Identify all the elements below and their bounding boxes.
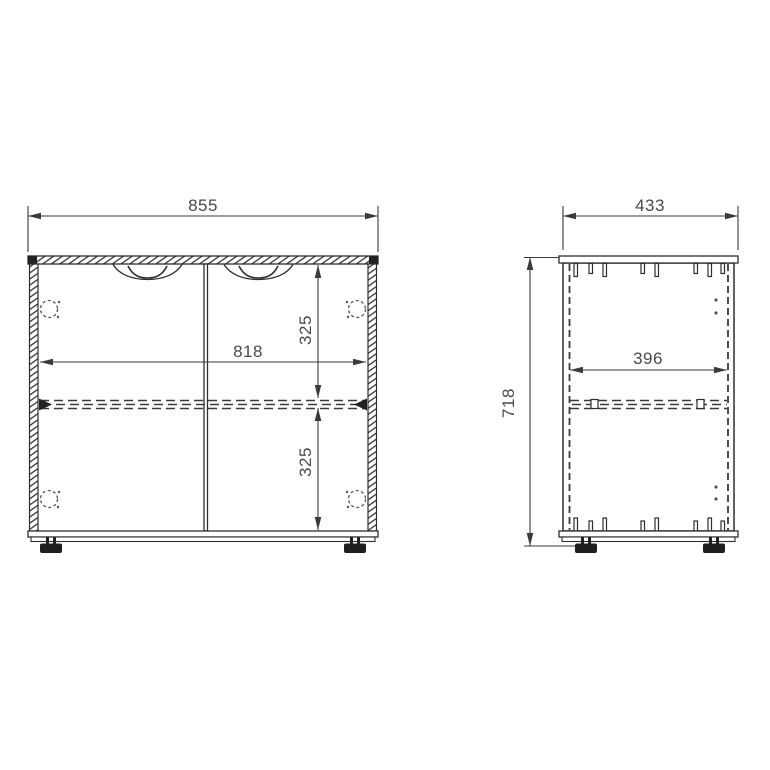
front-shelf-hidden-line xyxy=(40,401,366,409)
side-bottom-panel xyxy=(559,531,738,537)
front-top-left-corner-block xyxy=(28,256,37,264)
front-inner-width-dimension xyxy=(40,359,366,366)
front-lower-compartment-label: 325 xyxy=(297,445,315,479)
cabinet-dimension-drawing xyxy=(0,0,770,770)
upper-compartment-dimension xyxy=(315,265,322,398)
front-bottom-panel xyxy=(28,531,378,537)
front-view xyxy=(28,206,378,553)
front-left-side-panel xyxy=(30,264,39,531)
front-center-divider xyxy=(204,264,208,531)
left-door-handle-recess xyxy=(113,265,182,280)
hinge-marker-top-left xyxy=(41,301,58,318)
front-top-panel xyxy=(28,256,378,264)
front-width-label: 855 xyxy=(186,197,220,215)
front-base-strip xyxy=(31,537,375,542)
front-top-right-corner-block xyxy=(369,256,378,264)
side-height-label: 718 xyxy=(500,386,518,420)
front-upper-compartment-label: 325 xyxy=(297,313,315,347)
hinge-marker-bottom-left xyxy=(41,491,58,508)
right-door-handle-recess xyxy=(224,265,293,280)
front-inner-width-label: 818 xyxy=(231,343,265,361)
front-right-side-panel xyxy=(368,264,377,531)
hinge-marker-top-right xyxy=(349,301,366,318)
side-shelf-pin-front xyxy=(591,400,598,409)
technical-drawing-canvas: 855 818 325 325 433 718 396 xyxy=(0,0,770,770)
hinge-marker-bottom-right xyxy=(349,491,366,508)
side-depth-label: 433 xyxy=(633,197,667,215)
side-top-panel xyxy=(559,256,738,263)
side-inner-depth-label: 396 xyxy=(631,350,665,368)
side-shelf-pin-back xyxy=(697,400,704,409)
side-view xyxy=(524,206,738,553)
lower-compartment-dimension xyxy=(315,408,322,530)
side-body-outline xyxy=(563,263,734,531)
